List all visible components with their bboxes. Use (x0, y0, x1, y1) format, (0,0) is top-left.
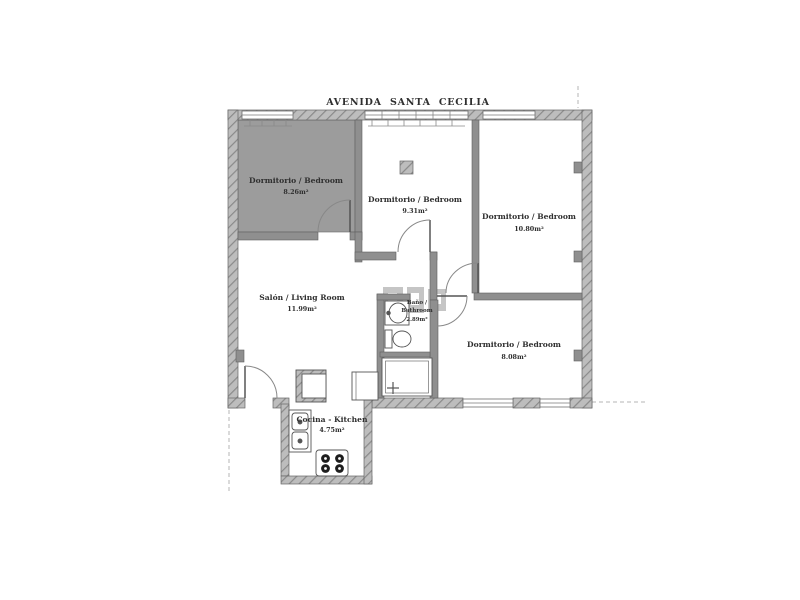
wall-bath-top (377, 294, 410, 300)
floor-plan-svg: AVENIDA SANTA CECILIA Dormitorio / Bedro… (0, 0, 800, 600)
room-area-bedroom-3: 10.80m² (514, 225, 544, 233)
wall-bottom-right-a (513, 398, 540, 408)
wall-bottom-left-a (228, 398, 245, 408)
wall-kitchen-bottom (281, 476, 372, 484)
wall-hall-left (430, 252, 437, 300)
room-area-bedroom-4: 8.08m² (501, 353, 526, 361)
room-label-bedroom-1: Dormitorio / Bedroom (249, 176, 343, 185)
room-label-bedroom-3: Dormitorio / Bedroom (482, 212, 576, 221)
column-bedroom-2 (400, 161, 413, 174)
wall-bump-right-3 (574, 350, 582, 361)
floor-plan-page: AVENIDA SANTA CECILIA Dormitorio / Bedro… (0, 0, 800, 600)
wall-right (582, 110, 592, 408)
wall-bump-right-2 (574, 251, 582, 262)
wall-bottom-mid (372, 398, 463, 408)
room-area-bedroom-1: 8.26m² (283, 188, 308, 196)
room-label-bedroom-2: Dormitorio / Bedroom (368, 195, 462, 204)
wall-bed1-salon-a (238, 232, 318, 240)
room-area-living-room: 11.99m² (287, 305, 317, 313)
wall-bed2-hall-a (355, 252, 396, 260)
room-area-kitchen: 4.75m² (319, 426, 344, 434)
room-label-living-room: Salón / Living Room (259, 293, 344, 302)
toilet-bowl (393, 331, 411, 347)
room-label-bedroom-4: Dormitorio / Bedroom (467, 340, 561, 349)
wall-bump-left-1 (236, 350, 244, 362)
wall-kitchen-left (281, 404, 289, 476)
room-area-bedroom-2: 9.31m² (402, 207, 427, 215)
room-label-bathroom-en: Bathroom (401, 308, 432, 314)
wall-bottom-right-b (570, 398, 592, 408)
room-label-bathroom-es: Baño / (407, 299, 428, 306)
wall-bed1-bed2 (355, 120, 362, 240)
room-label-kitchen: Cocina - Kitchen (297, 415, 368, 424)
kitchen-stove (316, 450, 348, 476)
toilet-tank (385, 330, 392, 348)
wall-left (228, 110, 238, 408)
kitchen-column-cabinet (302, 374, 326, 398)
street-label: AVENIDA SANTA CECILIA (325, 97, 490, 108)
wall-bump-right-1 (574, 162, 582, 173)
bathroom-sink-faucet (387, 311, 391, 315)
wall-bath-shower-divider (380, 352, 430, 357)
wall-bed3-bed4 (474, 293, 582, 300)
room-area-bathroom: 2.89m² (406, 316, 428, 323)
wall-kitchen-right (364, 398, 372, 484)
